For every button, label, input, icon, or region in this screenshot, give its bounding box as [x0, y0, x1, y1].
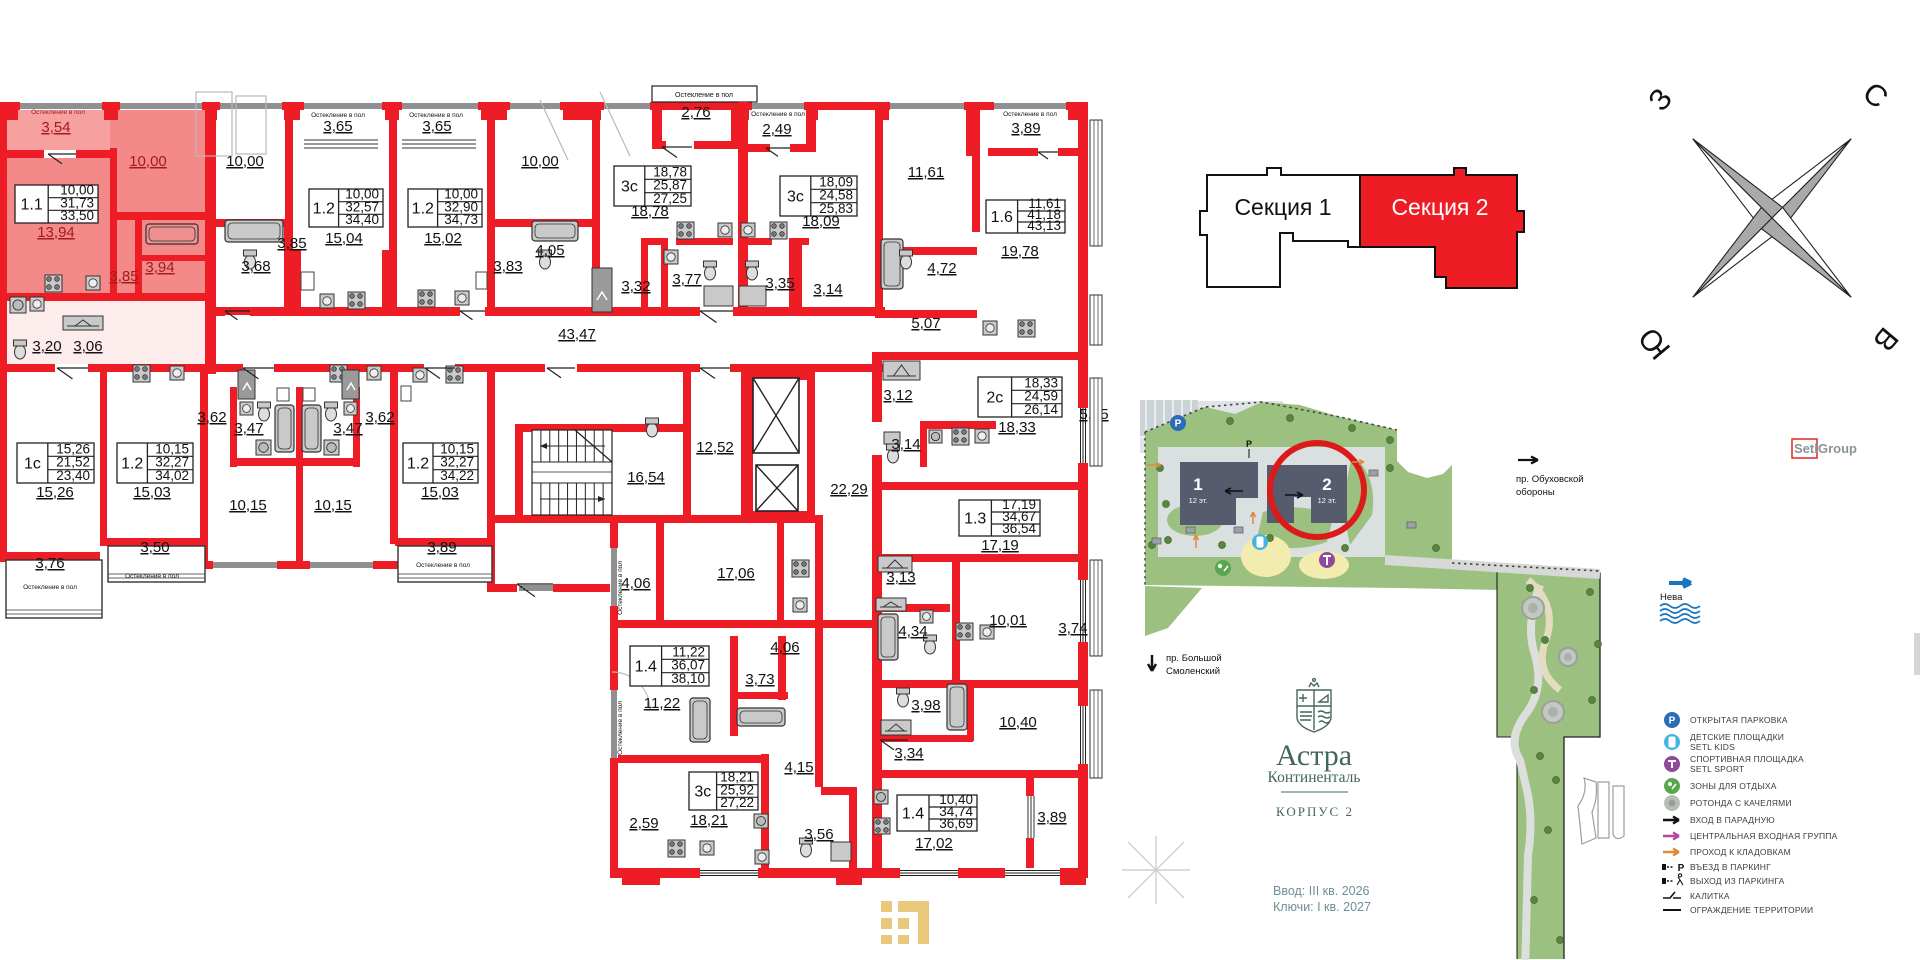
svg-text:ВХОД В ПАРАДНУЮ: ВХОД В ПАРАДНУЮ — [1690, 815, 1775, 825]
svg-text:1.2: 1.2 — [313, 201, 335, 218]
svg-text:43,47: 43,47 — [558, 326, 596, 343]
svg-text:34,40: 34,40 — [345, 212, 379, 227]
svg-text:Остекление в пол: Остекление в пол — [409, 112, 463, 119]
svg-text:Остекление в пол: Остекление в пол — [675, 92, 733, 99]
svg-text:4,05: 4,05 — [535, 242, 564, 259]
svg-text:Астра: Астра — [1276, 739, 1352, 772]
svg-text:Остекление в пол: Остекление в пол — [617, 561, 624, 615]
svg-text:2,76: 2,76 — [681, 104, 710, 121]
svg-text:38,10: 38,10 — [671, 671, 705, 686]
svg-text:3,47: 3,47 — [234, 420, 263, 437]
svg-text:15,03: 15,03 — [133, 484, 171, 501]
svg-text:1.2: 1.2 — [412, 201, 434, 218]
svg-text:Остекление в пол: Остекление в пол — [751, 111, 805, 118]
svg-text:18,33: 18,33 — [998, 419, 1036, 436]
svg-text:3,62: 3,62 — [197, 409, 226, 426]
svg-text:3,89: 3,89 — [427, 539, 456, 556]
svg-text:15,04: 15,04 — [325, 230, 363, 247]
svg-text:23,40: 23,40 — [56, 468, 90, 483]
svg-text:3,94: 3,94 — [145, 259, 174, 276]
svg-text:26,14: 26,14 — [1024, 402, 1058, 417]
svg-text:3,50: 3,50 — [140, 539, 169, 556]
svg-text:3с: 3с — [694, 784, 711, 801]
svg-text:ЦЕНТРАЛЬНАЯ ВХОДНАЯ ГРУППА: ЦЕНТРАЛЬНАЯ ВХОДНАЯ ГРУППА — [1690, 831, 1838, 841]
svg-text:1.6: 1.6 — [991, 209, 1013, 226]
svg-text:5,07: 5,07 — [911, 315, 940, 332]
svg-text:12 эт.: 12 эт. — [1318, 496, 1337, 505]
svg-text:4,06: 4,06 — [621, 575, 650, 592]
svg-text:34,02: 34,02 — [155, 468, 189, 483]
svg-text:Ключи: I кв. 2027: Ключи: I кв. 2027 — [1273, 900, 1371, 914]
svg-text:3,89: 3,89 — [1011, 120, 1040, 137]
svg-text:3,47: 3,47 — [333, 420, 362, 437]
svg-text:4,72: 4,72 — [927, 260, 956, 277]
svg-text:10,40: 10,40 — [999, 714, 1037, 731]
svg-text:пр. Большой: пр. Большой — [1166, 653, 1222, 664]
svg-text:1.2: 1.2 — [121, 456, 143, 473]
svg-text:34,22: 34,22 — [440, 468, 474, 483]
svg-text:ПРОХОД К КЛАДОВКАМ: ПРОХОД К КЛАДОВКАМ — [1690, 847, 1791, 857]
svg-text:17,19: 17,19 — [981, 537, 1019, 554]
svg-text:Ввод: III кв. 2026: Ввод: III кв. 2026 — [1273, 884, 1370, 898]
svg-text:3,54: 3,54 — [41, 119, 70, 136]
svg-text:18,21: 18,21 — [690, 812, 728, 829]
svg-text:33,50: 33,50 — [60, 208, 94, 223]
svg-text:10,01: 10,01 — [989, 612, 1027, 629]
svg-text:4,06: 4,06 — [770, 639, 799, 656]
svg-text:34,73: 34,73 — [444, 212, 478, 227]
svg-text:2с: 2с — [986, 390, 1003, 407]
svg-text:пр. Обуховской: пр. Обуховской — [1516, 474, 1584, 485]
svg-text:Остекление в пол: Остекление в пол — [311, 112, 365, 119]
svg-text:18,09: 18,09 — [802, 213, 840, 230]
svg-text:3,73: 3,73 — [745, 671, 774, 688]
svg-text:ЗОНЫ ДЛЯ ОТДЫХА: ЗОНЫ ДЛЯ ОТДЫХА — [1690, 781, 1777, 791]
svg-text:Смоленский: Смоленский — [1166, 666, 1220, 677]
svg-text:3,13: 3,13 — [886, 569, 915, 586]
svg-text:3,77: 3,77 — [672, 271, 701, 288]
svg-text:ОТКРЫТАЯ ПАРКОВКА: ОТКРЫТАЯ ПАРКОВКА — [1690, 715, 1788, 725]
svg-text:17,06: 17,06 — [717, 565, 755, 582]
svg-text:3,85: 3,85 — [277, 235, 306, 252]
svg-text:3с: 3с — [787, 189, 804, 206]
svg-text:43,13: 43,13 — [1027, 218, 1061, 233]
svg-text:27,22: 27,22 — [720, 795, 754, 810]
svg-text:3,65: 3,65 — [323, 118, 352, 135]
svg-text:22,29: 22,29 — [830, 481, 868, 498]
svg-text:10,15: 10,15 — [229, 497, 267, 514]
svg-text:4,34: 4,34 — [898, 623, 927, 640]
svg-text:11,22: 11,22 — [644, 695, 680, 712]
svg-text:Остекление в пол: Остекление в пол — [125, 573, 179, 580]
svg-text:РОТОНДА С КАЧЕЛЯМИ: РОТОНДА С КАЧЕЛЯМИ — [1690, 798, 1792, 808]
svg-text:ОГРАЖДЕНИЕ ТЕРРИТОРИИ: ОГРАЖДЕНИЕ ТЕРРИТОРИИ — [1690, 905, 1813, 915]
svg-text:Секция 1: Секция 1 — [1234, 194, 1331, 220]
svg-text:3,32: 3,32 — [621, 278, 650, 295]
svg-text:1.1: 1.1 — [20, 197, 42, 214]
svg-text:Континенталь: Континенталь — [1268, 769, 1361, 786]
svg-text:3,98: 3,98 — [911, 697, 940, 714]
svg-text:КОРПУС 2: КОРПУС 2 — [1276, 804, 1354, 819]
svg-text:4,15: 4,15 — [784, 759, 813, 776]
svg-text:КАЛИТКА: КАЛИТКА — [1690, 891, 1730, 901]
svg-text:3,34: 3,34 — [894, 745, 923, 762]
svg-text:SETL SPORT: SETL SPORT — [1690, 764, 1744, 774]
svg-text:10,15: 10,15 — [314, 497, 352, 514]
svg-text:Остекление в пол: Остекление в пол — [617, 701, 624, 755]
svg-text:13,94: 13,94 — [37, 224, 75, 241]
svg-text:P: P — [1175, 419, 1182, 430]
svg-text:Остекление в пол: Остекление в пол — [1003, 111, 1057, 118]
svg-text:3с: 3с — [621, 179, 638, 196]
svg-text:3,20: 3,20 — [32, 338, 61, 355]
svg-text:Group: Group — [1818, 441, 1857, 456]
svg-text:11,61: 11,61 — [908, 164, 944, 181]
svg-text:36,69: 36,69 — [939, 816, 973, 831]
svg-text:3,14: 3,14 — [813, 281, 842, 298]
svg-text:3,14: 3,14 — [891, 436, 920, 453]
svg-text:1.2: 1.2 — [407, 456, 429, 473]
svg-text:2,49: 2,49 — [762, 121, 791, 138]
svg-text:3,12: 3,12 — [883, 387, 912, 404]
svg-text:3,76: 3,76 — [35, 555, 64, 572]
svg-text:3,74: 3,74 — [1058, 620, 1087, 637]
svg-text:16,54: 16,54 — [627, 469, 665, 486]
svg-text:Остекление в пол: Остекление в пол — [23, 584, 77, 591]
svg-text:3,83: 3,83 — [493, 258, 522, 275]
svg-text:3,85: 3,85 — [109, 268, 138, 285]
svg-text:Р: Р — [1246, 439, 1252, 449]
svg-text:10,00: 10,00 — [521, 153, 559, 170]
svg-text:ВЫХОД ИЗ ПАРКИНГА: ВЫХОД ИЗ ПАРКИНГА — [1690, 876, 1785, 886]
svg-text:2,59: 2,59 — [629, 815, 658, 832]
svg-text:3,89: 3,89 — [1037, 809, 1066, 826]
svg-text:3,35: 3,35 — [765, 275, 794, 292]
svg-text:ВЪЕЗД В ПАРКИНГ: ВЪЕЗД В ПАРКИНГ — [1690, 862, 1771, 872]
svg-text:1.4: 1.4 — [635, 659, 657, 676]
svg-text:1: 1 — [1193, 475, 1202, 494]
svg-text:Остекление в пол: Остекление в пол — [416, 562, 470, 569]
svg-text:1.3: 1.3 — [964, 511, 986, 528]
svg-text:обороны: обороны — [1516, 487, 1555, 498]
svg-text:Остекление в пол: Остекление в пол — [31, 109, 85, 116]
svg-text:15,02: 15,02 — [424, 230, 462, 247]
svg-text:1с: 1с — [24, 456, 41, 473]
svg-text:17,02: 17,02 — [915, 835, 953, 852]
svg-text:3,65: 3,65 — [422, 118, 451, 135]
svg-text:10,00: 10,00 — [129, 153, 167, 170]
svg-text:3,62: 3,62 — [365, 409, 394, 426]
svg-text:36,54: 36,54 — [1002, 521, 1036, 536]
svg-text:15,03: 15,03 — [421, 484, 459, 501]
svg-text:3,56: 3,56 — [804, 826, 833, 843]
svg-text:10,00: 10,00 — [226, 153, 264, 170]
svg-text:12,52: 12,52 — [696, 439, 734, 456]
svg-text:3,68: 3,68 — [241, 258, 270, 275]
svg-text:Р: Р — [1678, 863, 1685, 874]
svg-text:P: P — [1669, 716, 1676, 727]
svg-text:1.4: 1.4 — [902, 806, 924, 823]
svg-text:19,78: 19,78 — [1001, 243, 1039, 260]
svg-text:2: 2 — [1322, 475, 1331, 494]
svg-text:Setl: Setl — [1794, 441, 1818, 456]
svg-text:SETL KIDS: SETL KIDS — [1690, 742, 1735, 752]
svg-text:12 эт.: 12 эт. — [1189, 496, 1208, 505]
svg-text:Секция 2: Секция 2 — [1391, 194, 1488, 220]
svg-text:3,06: 3,06 — [73, 338, 102, 355]
svg-text:ДЕТСКИЕ ПЛОЩАДКИ: ДЕТСКИЕ ПЛОЩАДКИ — [1690, 732, 1784, 742]
svg-text:18,78: 18,78 — [631, 203, 669, 220]
svg-text:СПОРТИВНАЯ ПЛОЩАДКА: СПОРТИВНАЯ ПЛОЩАДКА — [1690, 754, 1804, 764]
svg-text:Нева: Нева — [1660, 592, 1683, 603]
svg-text:15,26: 15,26 — [36, 484, 74, 501]
